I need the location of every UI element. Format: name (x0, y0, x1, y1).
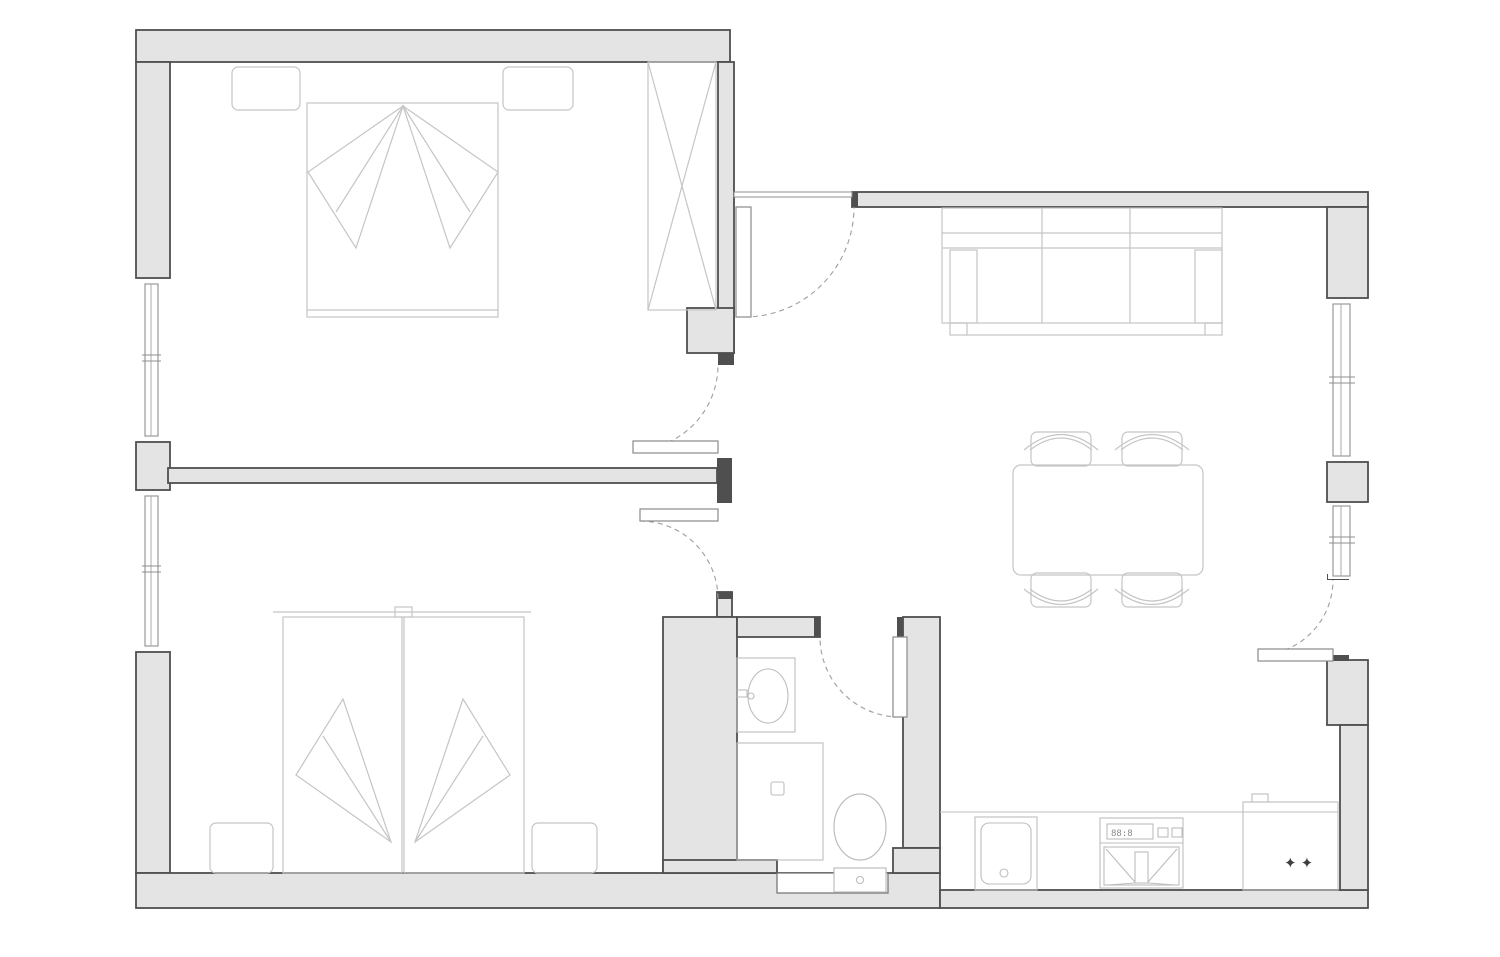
window1-opening (137, 279, 169, 441)
bathroom-door-arc (820, 637, 900, 717)
wall-right-lower (1340, 725, 1368, 890)
kitchen-sink-unit (975, 817, 1037, 890)
chair2-back-outer (1115, 435, 1189, 451)
bathroom-door-leaf (893, 637, 907, 717)
floor-plan-drawing: 88:8✦✦ (0, 0, 1500, 957)
bedroom2-door-arc (640, 521, 718, 599)
bed1-nightstand-left (232, 67, 300, 110)
wall-top-bedrooms (136, 30, 730, 62)
entry-door-arc (744, 207, 854, 317)
bed2-mattress-left (283, 617, 402, 873)
chair3-back-outer (1024, 589, 1098, 605)
wall-shower-base (663, 860, 777, 873)
wall-bath-duct (663, 617, 737, 873)
jamb-bedroom1-door (718, 353, 734, 365)
bedroom1-door-leaf (633, 441, 718, 453)
bath-tap-knob (748, 693, 754, 699)
kitchen-sink-drain (1000, 869, 1008, 877)
shower-tray (737, 743, 823, 860)
bed2-nightstand-right (532, 823, 597, 873)
jamb-bath-right (897, 617, 903, 637)
sofa-arm-left (950, 250, 977, 323)
bedroom1-door-arc (633, 365, 718, 450)
fridge-body (1243, 802, 1338, 890)
toilet-bowl (834, 794, 886, 860)
bath-tap (737, 690, 747, 697)
wall-bath-right (903, 617, 940, 848)
chair1-seat (1031, 432, 1091, 466)
wall-living-top (852, 192, 1368, 207)
wall-right-pier-top (1327, 207, 1368, 298)
wall-right-below-door (1327, 660, 1368, 725)
jamb-entry (852, 192, 858, 207)
bed1-blanket-left (308, 106, 403, 248)
stove-knob-b (1172, 828, 1182, 837)
freezer-stars-text: ✦✦ (1284, 854, 1317, 872)
wall-left-upper (136, 62, 170, 278)
balcony-door-arc (1258, 580, 1333, 655)
bed2-mattress-right (404, 617, 524, 873)
wall-bath-top (737, 617, 820, 637)
window2-opening (137, 491, 169, 651)
chair2-seat (1122, 432, 1182, 466)
oven-door-center (1135, 852, 1148, 883)
bed1-blanket-left-fold (336, 106, 403, 212)
bed1-blanket-right-fold (403, 106, 470, 212)
dining-table (1013, 465, 1203, 575)
chair1-back-outer (1024, 435, 1098, 451)
stove-display-text: 88:8 (1111, 829, 1133, 839)
window3-opening (1328, 299, 1366, 461)
jamb-bath-left (814, 617, 820, 637)
toilet-tank (834, 868, 886, 892)
bedroom2-door-leaf (640, 509, 718, 521)
chair4-back-outer (1115, 589, 1189, 605)
oven-door-diag-b (1148, 849, 1177, 882)
wall-bottom-right (940, 890, 1368, 908)
bed1-nightstand-right (503, 67, 573, 110)
wall-left-lower (136, 652, 170, 873)
sofa-outline (942, 208, 1222, 323)
bed1-blanket-right (403, 106, 498, 248)
fridge-handle (1252, 794, 1268, 802)
oven-door (1104, 847, 1179, 885)
sofa-foot-left (950, 323, 967, 335)
sofa-foot-right (1205, 323, 1222, 335)
jamb-divider-endcap (717, 458, 732, 503)
kitchen-sink-basin (981, 823, 1031, 884)
bed2-blanket-left-fold (323, 736, 391, 842)
balcony-door-leaf (1258, 649, 1333, 661)
sofa-arm-right (1195, 250, 1222, 323)
stove-knob-a (1158, 828, 1168, 837)
wall-bath-right-foot (893, 848, 940, 873)
jamb-bedroom2-door (718, 592, 733, 599)
entry-door-leaf (736, 207, 751, 317)
entry-threshold (734, 192, 852, 197)
wall-bedrooms-divider (168, 468, 717, 483)
wall-right-pier-mid (1327, 462, 1368, 502)
wall-left-pier (136, 442, 170, 490)
wall-wardrobe-jog (687, 308, 734, 353)
chair3-seat (1031, 573, 1091, 607)
shower-drain (771, 782, 784, 795)
apartment-floor-plan: 88:8✦✦ (0, 0, 1500, 957)
window4-opening (1328, 503, 1366, 579)
chair4-seat (1122, 573, 1182, 607)
oven-door-diag-a (1106, 849, 1135, 882)
bed2-blanket-right-fold (415, 736, 483, 842)
bed2-nightstand-left (210, 823, 273, 873)
